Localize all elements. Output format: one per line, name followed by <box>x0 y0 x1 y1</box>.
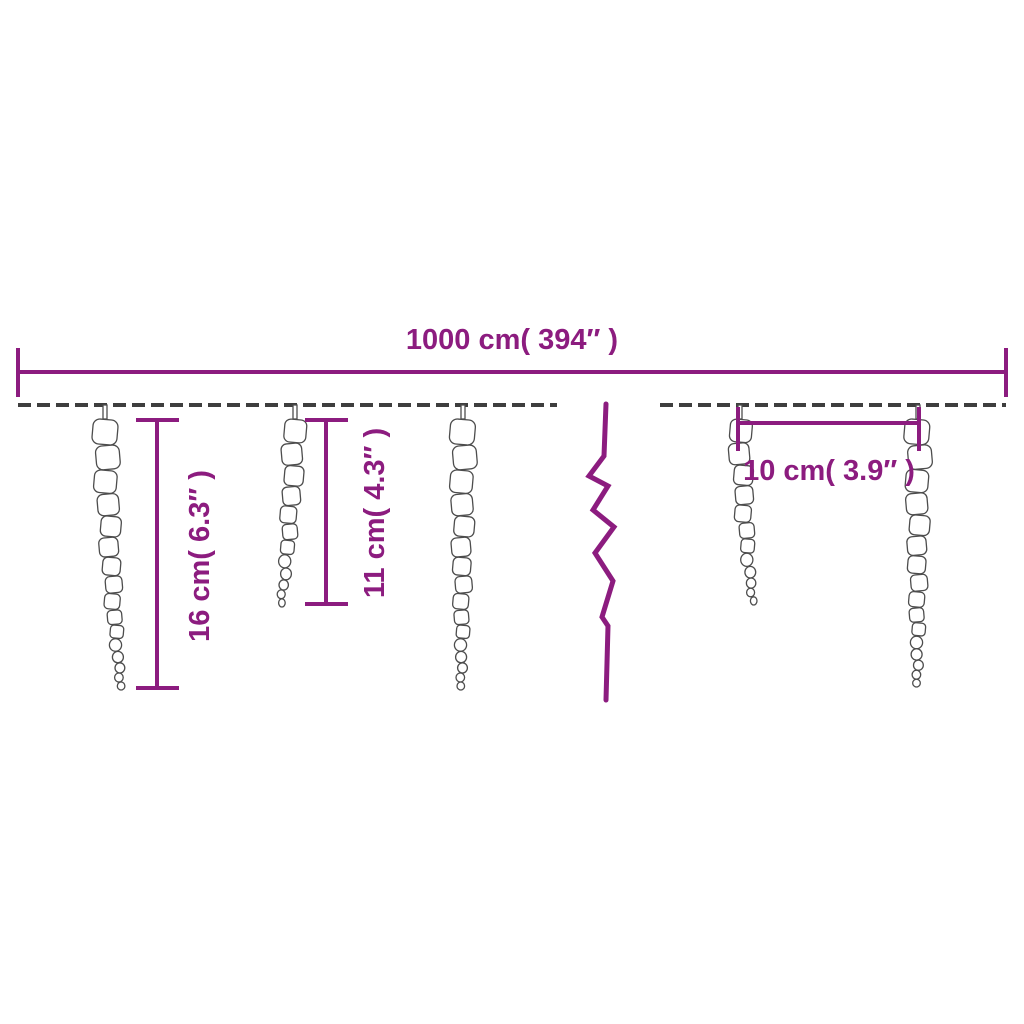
icicle-bead <box>456 673 465 682</box>
icicle-bead <box>914 660 924 670</box>
icicle-bead <box>909 607 925 622</box>
icicle-bead <box>277 590 285 599</box>
icicle-bead <box>913 679 921 687</box>
icicle-bead <box>117 682 125 690</box>
icicle-bead <box>735 485 754 505</box>
icicle-bead <box>907 555 926 574</box>
icicle-bead <box>910 574 928 592</box>
icicle-bead <box>100 516 122 538</box>
icicle-bead <box>279 506 297 524</box>
icicle-bead <box>91 418 118 445</box>
icicle-bead <box>456 625 470 639</box>
icicle-bead <box>450 493 473 516</box>
icicle-bead <box>115 663 125 673</box>
icicle-bead <box>458 663 468 673</box>
icicle-bead <box>95 445 121 471</box>
icicle-bead <box>455 576 473 594</box>
height-16cm-label: 16 cm( 6.3″ ) <box>184 470 216 642</box>
icicle-bead <box>457 682 465 690</box>
icicle-bead <box>451 537 472 558</box>
total-width-label: 1000 cm( 394″ ) <box>406 324 618 356</box>
icicle-bead <box>449 469 474 493</box>
icicle-bead <box>750 597 757 605</box>
icicle-bead <box>452 593 469 610</box>
icicle-bead <box>745 566 756 578</box>
icicle-bead <box>905 492 928 515</box>
height-dimension-11cm: 11 cm( 4.3″ ) <box>305 420 391 604</box>
icicle-wire <box>293 405 297 419</box>
icicle-bead <box>97 493 120 516</box>
icicle <box>728 405 757 605</box>
icicle-bead <box>102 557 121 576</box>
icicle-bead <box>739 522 755 538</box>
icicle-bead <box>741 553 753 566</box>
icicle-bead <box>912 622 926 636</box>
icicle-bead <box>284 465 305 486</box>
icicle-wire <box>461 405 465 419</box>
icicle-bead <box>454 639 466 652</box>
icicle-bead <box>453 516 475 538</box>
icicle-bead <box>107 610 123 625</box>
icicle-bead <box>734 505 752 523</box>
icicle-bead <box>912 670 921 679</box>
icicle-bead <box>910 636 922 649</box>
icicle-bead <box>110 625 124 639</box>
icicle-bead <box>279 599 286 607</box>
icicle <box>91 405 124 690</box>
icicle-bead <box>104 593 121 610</box>
icicle-bead <box>109 639 121 652</box>
height-dimension-16cm: 16 cm( 6.3″ ) <box>136 420 216 688</box>
icicle-bead <box>282 523 298 540</box>
icicle-bead <box>740 539 755 554</box>
icicle-bead <box>282 486 301 506</box>
spacing-10cm-label: 10 cm( 3.9″ ) <box>743 455 915 487</box>
icicle-bead <box>456 651 467 662</box>
icicle-bead <box>452 557 471 576</box>
icicle-bead <box>281 443 303 466</box>
icicle-bead <box>746 578 755 588</box>
icicle-bead <box>283 419 307 444</box>
icicle-bead <box>908 591 925 607</box>
cable-break-zigzag <box>589 404 614 700</box>
icicle-wire <box>103 405 107 419</box>
icicle-bead <box>98 537 119 558</box>
icicle-bead <box>279 580 288 590</box>
icicle-bead <box>93 469 118 493</box>
icicle-bead <box>105 576 123 594</box>
icicle-bead <box>279 555 291 568</box>
icicle-bead <box>281 568 292 580</box>
total-width-dimension: 1000 cm( 394″ ) <box>18 324 1006 397</box>
icicle-bead <box>906 535 927 555</box>
icicle-bead <box>112 651 123 662</box>
icicle-bead <box>452 445 478 471</box>
icicles <box>91 405 932 690</box>
icicle-bead <box>454 610 470 625</box>
icicle-bead <box>909 514 931 536</box>
height-11cm-label: 11 cm( 4.3″ ) <box>359 428 391 598</box>
icicle-lights-dimension-diagram: 1000 cm( 394″ ) 16 cm( 6.3″ ) 11 cm( 4.3… <box>0 0 1024 1024</box>
icicle-bead <box>280 540 295 555</box>
icicle-bead <box>115 673 124 682</box>
icicle-bead <box>747 588 755 597</box>
spacing-dimension-10cm: 10 cm( 3.9″ ) <box>738 407 919 487</box>
icicle <box>277 405 307 607</box>
icicle <box>449 405 478 690</box>
icicle-bead <box>911 649 922 660</box>
icicle-bead <box>449 418 476 445</box>
